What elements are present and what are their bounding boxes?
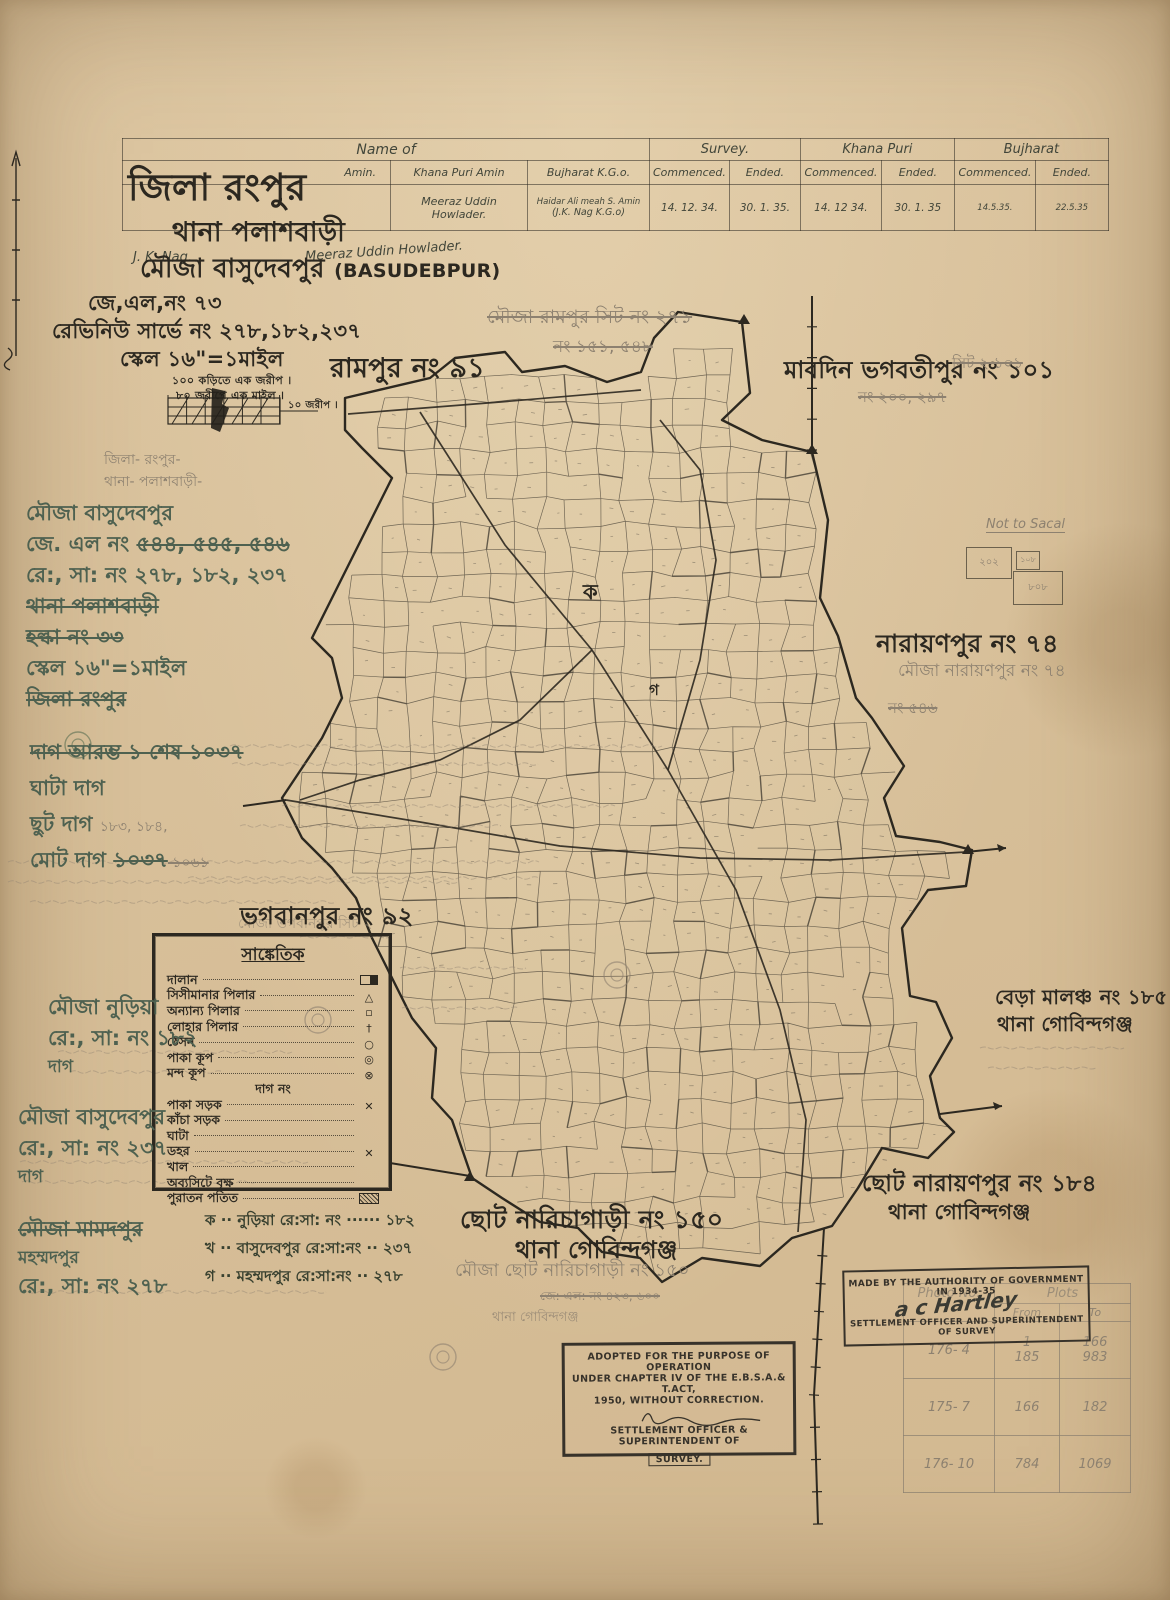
margin-note-block-mohammadpur: মৌজা মামদপুরমহম্মদপুররে:, সা: নং ২৭৮ <box>18 1214 167 1302</box>
margin-note-line: মৌজা মামদপুর <box>18 1214 167 1245</box>
not-to-scale-sketch-box-1: ২০২ <box>966 547 1012 579</box>
adopted-line-5: SURVEY. <box>649 1453 711 1466</box>
pencil-note-thana-gobindaganj: থানা গোবিন্দগঞ্জ <box>492 1308 578 1329</box>
pencil-note-sheet-101: সিট ২ ১০১ <box>952 352 1023 377</box>
not-to-scale-sketch-box-3: ৮০৮ <box>1013 571 1063 605</box>
station-circle-mark-inner <box>437 1351 449 1363</box>
legend-title: সাঙ্কেতিক <box>167 942 379 970</box>
adopted-line-4: SETTLEMENT OFFICER & SUPERINTENDENT OF <box>565 1424 793 1448</box>
margin-note-line: থানা পলাশবাড়ী <box>26 591 290 622</box>
pencil-note-rampur-sheet: মৌজা রামপুর সিট নং ২৭১ <box>487 303 692 335</box>
adopted-line-1: ADOPTED FOR THE PURPOSE OF OPERATION <box>565 1350 793 1374</box>
margin-note-line: দাগ আরম্ভ ১ শেষ ১০৩৭ <box>30 736 244 772</box>
legend-item: লোহার পিলার† <box>167 1021 379 1037</box>
photo-table-row: 175- 7166182 <box>904 1379 1131 1436</box>
government-authority-stamp: MADE BY THE AUTHORITY OF GOVERNMENT IN 1… <box>842 1265 1091 1346</box>
station-circle-mark <box>430 1344 456 1370</box>
north-compass-line <box>4 152 20 370</box>
margin-note-line: জে. এল নং ৫৪৪, ৫৪৫, ৫৪৬ <box>26 529 290 560</box>
road-arrowheads <box>993 844 1006 1110</box>
map-title-mouza: মৌজা বাসুদেবপুর (BASUDEBPUR) <box>140 248 501 292</box>
margin-note-line: ঘাটা দাগ <box>30 772 244 808</box>
legend-footnote: ক ·· নুড়িয়া রে:সা: নং ······ ১৮২ <box>205 1206 415 1234</box>
margin-note-block-basudebpur: মৌজা বাসুদেবপুররে:, সা: নং ২৩৭দাগ <box>18 1102 167 1190</box>
margin-note-line: রে:, সা: নং ২৭৮, ১৮২, ২৩৭ <box>26 560 290 591</box>
external-road-line <box>940 1106 1002 1114</box>
margin-note-pencil-header: জিলা- রংপুর-থানা- পলাশবাড়ী- <box>104 449 202 493</box>
stamp-officer-title: SETTLEMENT OFFICER AND SUPERINTENDENT OF… <box>845 1314 1088 1339</box>
legend-item: ঘাটা <box>167 1130 379 1146</box>
zone-letter-ka: ক <box>583 576 598 611</box>
margin-note-line: জিলা রংপুর <box>26 684 290 715</box>
legend-footnote: খ ·· বাসুদেবপুর রে:সা:নং ·· ২৩৭ <box>205 1234 415 1262</box>
margin-note-block-dag: দাগ আরম্ভ ১ শেষ ১০৩৭ঘাটা দাগছুট দাগ ১৮৩,… <box>30 736 244 880</box>
pencil-note-not-to-scale: Not to Sacal <box>986 517 1065 533</box>
margin-note-line: মহম্মদপুর <box>18 1245 167 1271</box>
neighbor-label-bhagabanpur: ভগবানপুর নং ৯২ <box>240 898 414 938</box>
margin-note-line: ছুট দাগ ১৮৩, ১৮৪, <box>30 808 244 844</box>
legend-items: দালানসিসীমানার পিলার△অন্যান্য পিলার▫লোহা… <box>167 974 379 1208</box>
scale-bar-hatching <box>168 395 318 424</box>
legend-footnotes: ক ·· নুড়িয়া রে:সা: নং ······ ১৮২খ ·· ব… <box>205 1206 415 1290</box>
mouza-name-bengali: মৌজা বাসুদেবপুর <box>140 254 325 284</box>
margin-note-line: থানা- পলাশবাড়ী- <box>104 471 202 493</box>
margin-note-line: মৌজা বাসুদেবপুর <box>26 498 290 529</box>
external-road-line <box>243 800 286 806</box>
road-hatch-ticks <box>809 1256 827 1525</box>
margin-note-line: জিলা- রংপুর- <box>104 449 202 471</box>
pencil-scribble-row <box>980 1047 1124 1049</box>
margin-note-line: রে:, সা: নং ২৭৮ <box>18 1271 167 1302</box>
ink-blot <box>211 388 229 432</box>
not-to-scale-sketch-box-2: ১০৮ <box>1016 551 1040 570</box>
neighbor-label-chhoto-narayanpur-thana: থানা গোবিন্দগঞ্জ <box>888 1196 1031 1231</box>
margin-note-block-identity: মৌজা বাসুদেবপুরজে. এল নং ৫৪৪, ৫৪৫, ৫৪৬রে… <box>26 498 290 715</box>
photo-table-row: 176- 107841069 <box>904 1436 1131 1493</box>
legend-item: কাঁচা সড়ক <box>167 1114 379 1130</box>
margin-note-line: দাগ <box>48 1054 197 1080</box>
margin-note-line: মৌজা বাসুদেবপুর <box>18 1102 167 1133</box>
adopted-line-2: UNDER CHAPTER IV OF THE E.B.S.A.& T.ACT, <box>565 1372 793 1396</box>
external-road-line <box>390 1163 470 1176</box>
pencil-note-no-546: নং ৫৪৬ <box>888 697 937 722</box>
pencil-scribble-row <box>988 1067 1096 1069</box>
adopted-operation-stamp: ADOPTED FOR THE PURPOSE OF OPERATION UND… <box>562 1341 797 1457</box>
neighbor-label-rampur: রামপুর নং ৯১ <box>330 348 485 393</box>
margin-note-line: রে:, সা: নং ১৮২ <box>48 1023 197 1054</box>
pencil-note-mouza-chhoto-narichagari: মৌজা ছোট নারিচাগাড়ী নং ১৫০ <box>455 1256 689 1287</box>
margin-note-line: মৌজা নুড়িয়া <box>48 992 197 1023</box>
pencil-note-jl-numbers: জে: এল: নং ৪২৩, ৬০০ <box>540 1288 660 1308</box>
boundary-pillar-triangle <box>738 314 750 324</box>
margin-note-line: দাগ <box>18 1164 167 1190</box>
margin-note-line: হল্কা নং ৩৩ <box>26 622 290 653</box>
legend-footnote: গ ·· মহম্মদপুর রে:সা:নং ·· ২৭৮ <box>205 1262 415 1290</box>
legend-item: ডহর✕ <box>167 1146 379 1162</box>
margin-note-line: মোট দাগ ১০৩৭ ১০৬১ <box>30 844 244 880</box>
margin-note-line: রে:, সা: নং ২৩৭ <box>18 1133 167 1164</box>
pencil-note-mouza-narayanpur: মৌজা নারায়ণপুর নং ৭৪ <box>898 658 1066 686</box>
pencil-note-nos-200-297: নং ২০০, ২৯৭ <box>858 386 946 411</box>
zone-letter-ga: গ <box>649 679 659 704</box>
margin-note-line: স্কেল ১৬"=১মাইল <box>26 653 290 684</box>
external-road-line <box>814 1228 824 1524</box>
neighbor-label-bera-malancha-thana: থানা গোবিন্দগঞ্জ <box>997 1010 1133 1043</box>
pencil-note-rampur-numbers: নং ১৫১, ৫৪৮ <box>553 334 653 362</box>
boundary-pillar-triangle <box>806 444 818 454</box>
mouza-name-roman: (BASUDEBPUR) <box>334 260 500 282</box>
margin-note-block-nuriya: মৌজা নুড়িয়ারে:, সা: নং ১৮২দাগ <box>48 992 197 1080</box>
